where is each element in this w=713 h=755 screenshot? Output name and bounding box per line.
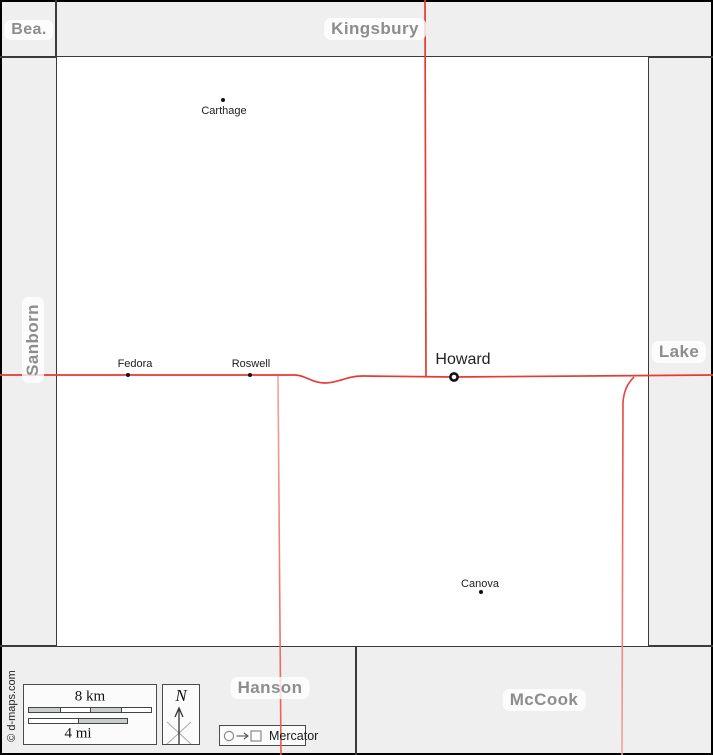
circle-to-square-icon bbox=[223, 729, 265, 743]
boundary-bottom-left bbox=[0, 645, 56, 647]
scale-seg bbox=[29, 708, 60, 712]
label-town-howard: Howard bbox=[435, 351, 490, 369]
label-town-fedora: Fedora bbox=[118, 358, 153, 370]
boundary-top-right bbox=[649, 56, 713, 58]
label-county-beadle: Bea. bbox=[4, 20, 53, 40]
scale-seg bbox=[90, 708, 121, 712]
scale-bar-mi bbox=[28, 718, 128, 724]
county-map: Bea. Kingsbury Sanborn Lake Hanson McCoo… bbox=[0, 0, 713, 755]
scale-km-label: 8 km bbox=[75, 689, 105, 706]
label-town-roswell: Roswell bbox=[232, 358, 271, 370]
label-county-mccook: McCook bbox=[503, 689, 586, 711]
label-county-hanson: Hanson bbox=[231, 677, 310, 699]
label-county-lake: Lake bbox=[652, 341, 706, 363]
projection-name: Mercator bbox=[269, 729, 318, 743]
map-credit: © d-maps.com bbox=[6, 670, 18, 742]
scale-seg bbox=[121, 708, 152, 712]
scale-mi-label: 4 mi bbox=[64, 726, 91, 743]
boundary-hanson-mccook bbox=[355, 646, 357, 755]
boundary-top-left bbox=[0, 56, 56, 58]
label-county-kingsbury: Kingsbury bbox=[324, 18, 426, 40]
label-town-canova: Canova bbox=[461, 578, 499, 590]
label-county-sanborn: Sanborn bbox=[22, 297, 44, 383]
scale-bar-km bbox=[28, 707, 152, 713]
boundary-bottom-right bbox=[649, 645, 713, 647]
boundary-beadle-kingsbury bbox=[55, 0, 57, 56]
county-area bbox=[56, 56, 649, 647]
projection-legend: Mercator bbox=[223, 729, 318, 743]
label-town-carthage: Carthage bbox=[201, 105, 246, 117]
north-arrow-icon bbox=[162, 702, 200, 744]
scale-seg bbox=[29, 719, 78, 723]
scale-seg bbox=[60, 708, 91, 712]
scale-seg bbox=[78, 719, 127, 723]
